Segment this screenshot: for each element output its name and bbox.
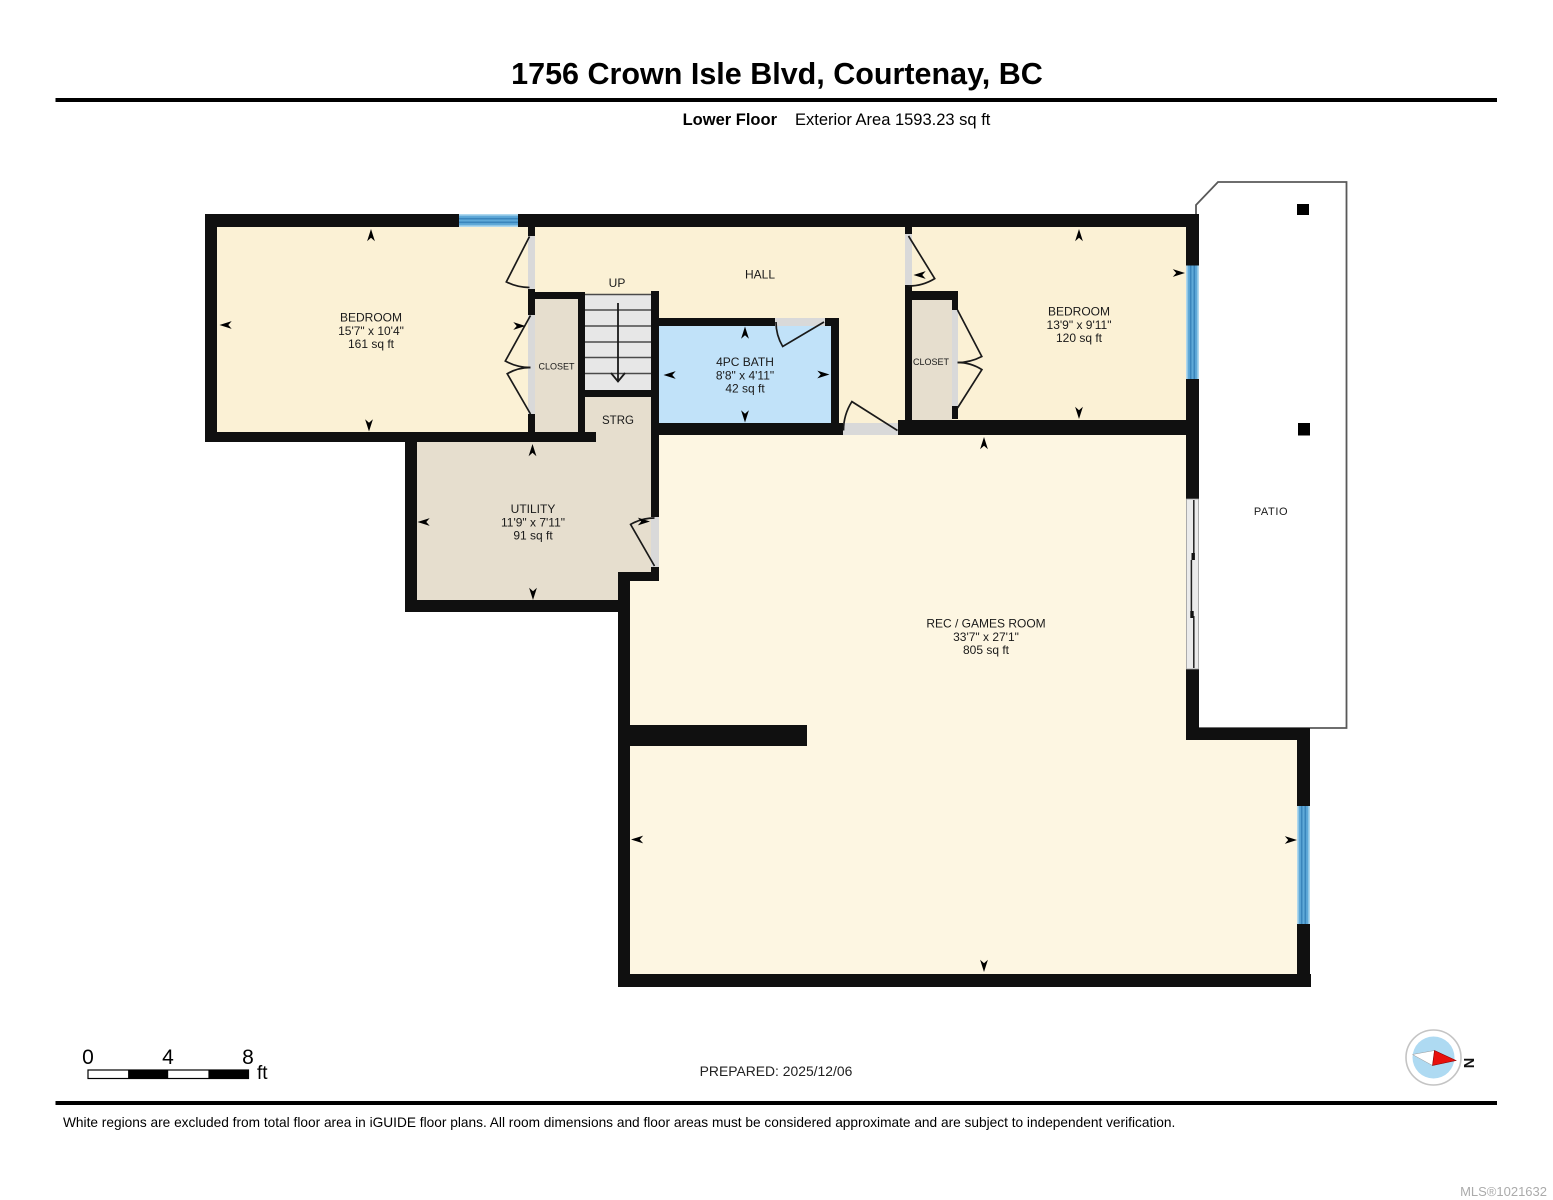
svg-text:8: 8 xyxy=(242,1046,254,1069)
svg-text:STRG: STRG xyxy=(602,415,634,427)
svg-text:UP: UP xyxy=(609,276,626,290)
svg-text:Lower Floor: Lower Floor xyxy=(683,111,778,129)
svg-text:13'9" x 9'11": 13'9" x 9'11" xyxy=(1047,318,1112,332)
svg-text:91 sq ft: 91 sq ft xyxy=(513,529,553,543)
svg-text:PREPARED: 2025/12/06: PREPARED: 2025/12/06 xyxy=(700,1063,853,1079)
svg-text:42 sq ft: 42 sq ft xyxy=(725,382,765,396)
svg-text:CLOSET: CLOSET xyxy=(538,362,575,372)
svg-text:1756 Crown Isle Blvd, Courtena: 1756 Crown Isle Blvd, Courtenay, BC xyxy=(511,57,1043,91)
svg-text:REC / GAMES ROOM: REC / GAMES ROOM xyxy=(926,617,1045,631)
svg-text:11'9" x 7'11": 11'9" x 7'11" xyxy=(501,515,565,529)
svg-text:8'8" x 4'11": 8'8" x 4'11" xyxy=(716,368,774,382)
svg-text:BEDROOM: BEDROOM xyxy=(1048,305,1110,319)
svg-text:MLS®1021632: MLS®1021632 xyxy=(1460,1184,1547,1199)
svg-text:120 sq ft: 120 sq ft xyxy=(1056,331,1103,345)
svg-text:0: 0 xyxy=(82,1046,94,1069)
svg-text:HALL: HALL xyxy=(745,268,775,282)
svg-text:N: N xyxy=(1460,1058,1476,1068)
svg-text:ft: ft xyxy=(257,1063,268,1084)
svg-text:15'7" x 10'4": 15'7" x 10'4" xyxy=(338,324,404,338)
svg-text:UTILITY: UTILITY xyxy=(511,502,556,516)
svg-text:PATIO: PATIO xyxy=(1254,506,1288,518)
svg-text:4: 4 xyxy=(162,1046,174,1069)
svg-text:161 sq ft: 161 sq ft xyxy=(348,337,395,351)
svg-text:33'7" x 27'1": 33'7" x 27'1" xyxy=(953,630,1019,644)
svg-text:Exterior Area 1593.23 sq ft: Exterior Area 1593.23 sq ft xyxy=(795,111,991,129)
svg-text:805 sq ft: 805 sq ft xyxy=(963,643,1010,657)
svg-text:CLOSET: CLOSET xyxy=(913,357,950,367)
svg-text:BEDROOM: BEDROOM xyxy=(340,311,402,325)
svg-text:White regions are excluded fro: White regions are excluded from total fl… xyxy=(63,1115,1175,1130)
svg-text:4PC BATH: 4PC BATH xyxy=(716,355,774,369)
